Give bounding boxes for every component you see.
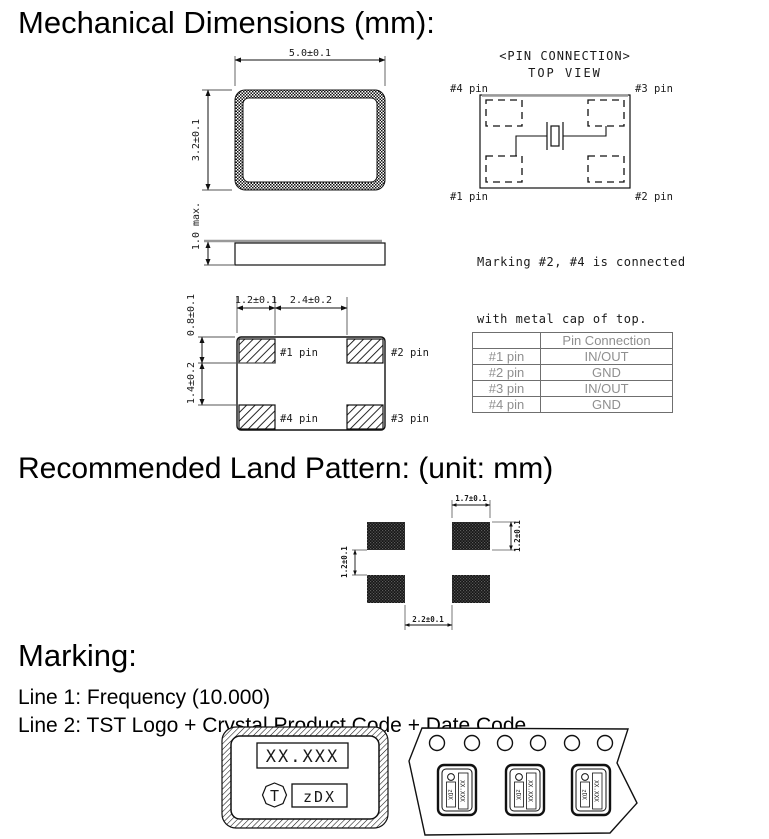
tape-frequency-text: XX.XXX xyxy=(527,780,534,802)
package-bottom-view-drawing: 1.2±0.1 2.4±0.2 0.8±0.1 1.4±0.2 #1 pin #… xyxy=(173,283,448,445)
table-header-pin-connection: Pin Connection xyxy=(541,333,673,349)
pin2-label: #2 pin xyxy=(391,347,429,359)
taped-component: zDX XX.XXX xyxy=(438,765,476,815)
tst-logo-icon xyxy=(516,774,523,781)
mechanical-dimensions-title: Mechanical Dimensions (mm): xyxy=(18,5,435,41)
frequency-marking-text: XX.XXX xyxy=(266,747,339,767)
tape-product-code: zDX xyxy=(447,789,454,800)
package-lid-top xyxy=(243,98,377,182)
pin2-cell: #2 pin xyxy=(473,365,541,381)
land-col-gap-dim-label: 2.2±0.1 xyxy=(412,615,444,624)
table-header-empty xyxy=(473,333,541,349)
land-pad-top-right xyxy=(452,522,490,550)
land-pad-bottom-left xyxy=(367,575,405,603)
marking-note-line2: with metal cap of top. xyxy=(477,310,686,329)
pin4-function-cell: GND xyxy=(541,397,673,413)
land-pad-top-left xyxy=(367,522,405,550)
pad-gap-dim-label: 2.4±0.2 xyxy=(290,295,332,306)
taped-component: zDX XX.XXX xyxy=(506,765,544,815)
tape-product-code: zDX xyxy=(515,789,522,800)
table-row: #1 pin IN/OUT xyxy=(473,349,673,365)
package-side-view-body xyxy=(235,243,385,265)
land-row-gap-dim-label: 1.2±0.1 xyxy=(340,546,349,578)
pin-connection-title: <PIN CONNECTION> xyxy=(499,49,631,63)
tst-logo-icon xyxy=(448,774,455,781)
datasheet-page: Mechanical Dimensions (mm): 5.0±0.1 3.2±… xyxy=(0,0,769,839)
top-view-height-dim-label: 3.2±0.1 xyxy=(191,119,202,161)
land-pad-height-dim-label: 1.2±0.1 xyxy=(513,520,522,552)
table-row: #3 pin IN/OUT xyxy=(473,381,673,397)
carrier-tape-drawing: zDX XX.XXX zDX XX.XXX zDX XX.XXX xyxy=(402,722,642,839)
thickness-dim-label: 1.0 max. xyxy=(191,202,202,250)
tst-logo-icon xyxy=(582,774,589,781)
product-code-text: zDX xyxy=(303,788,336,806)
pin-connection-subtitle: TOP VIEW xyxy=(528,66,602,80)
pin1-function-cell: IN/OUT xyxy=(541,349,673,365)
tape-frequency-text: XX.XXX xyxy=(593,780,600,802)
pin-connection-diagram: <PIN CONNECTION> TOP VIEW #4 pin #3 pin … xyxy=(450,46,680,206)
pin4-label: #4 pin xyxy=(450,83,488,95)
land-pattern-title: Recommended Land Pattern: (unit: mm) xyxy=(18,452,553,486)
pin1-cell: #1 pin xyxy=(473,349,541,365)
pin2-label: #2 pin xyxy=(635,191,673,203)
taped-component: zDX XX.XXX xyxy=(572,765,610,815)
pin1-label: #1 pin xyxy=(280,347,318,359)
pad-height-dim-label: 0.8±0.1 xyxy=(186,294,197,336)
land-pad-width-dim-label: 1.7±0.1 xyxy=(455,494,487,503)
pin1-label: #1 pin xyxy=(450,191,488,203)
top-view-width-dim-label: 5.0±0.1 xyxy=(289,48,331,59)
marking-note-line1: Marking #2, #4 is connected xyxy=(477,253,686,272)
package-top-side-view-drawing: 5.0±0.1 3.2±0.1 1.0 max. xyxy=(168,46,440,286)
tape-frequency-text: XX.XXX xyxy=(459,780,466,802)
land-pattern-drawing: 1.7±0.1 1.2±0.1 1.2±0.1 2.2±0.1 xyxy=(328,488,563,640)
table-row: #4 pin GND xyxy=(473,397,673,413)
pin4-cell: #4 pin xyxy=(473,397,541,413)
pad-width-dim-label: 1.2±0.1 xyxy=(235,295,277,306)
pin3-function-cell: IN/OUT xyxy=(541,381,673,397)
tst-logo-letter: T xyxy=(270,787,279,805)
pin-connection-table: Pin Connection #1 pin IN/OUT #2 pin GND … xyxy=(472,332,673,413)
tape-product-code: zDX xyxy=(581,789,588,800)
pad-3 xyxy=(347,405,383,429)
marking-line1: Line 1: Frequency (10.000) xyxy=(18,686,270,710)
marking-example-drawing: XX.XXX T zDX xyxy=(210,722,405,834)
table-row: #2 pin GND xyxy=(473,365,673,381)
land-pad-bottom-right xyxy=(452,575,490,603)
pad-row-gap-dim-label: 1.4±0.2 xyxy=(186,362,197,404)
pin3-cell: #3 pin xyxy=(473,381,541,397)
table-header-row: Pin Connection xyxy=(473,333,673,349)
marking-title: Marking: xyxy=(18,638,137,674)
pin2-function-cell: GND xyxy=(541,365,673,381)
pad-4 xyxy=(239,405,275,429)
pin3-label: #3 pin xyxy=(635,83,673,95)
pad-2 xyxy=(347,339,383,363)
pin3-label: #3 pin xyxy=(391,413,429,425)
pin4-label: #4 pin xyxy=(280,413,318,425)
pad-1 xyxy=(239,339,275,363)
